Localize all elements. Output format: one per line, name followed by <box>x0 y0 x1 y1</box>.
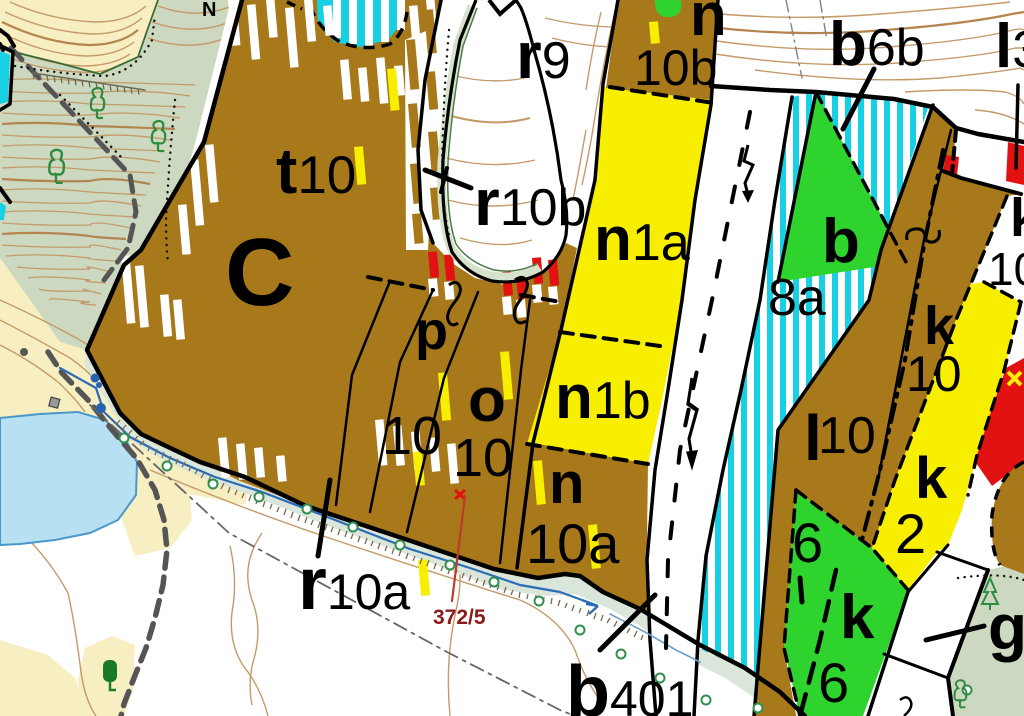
svg-text:b: b <box>822 207 860 276</box>
svg-text:g: g <box>988 591 1024 663</box>
svg-text:t10: t10 <box>276 135 356 207</box>
svg-text:10a: 10a <box>526 512 620 575</box>
svg-text:k: k <box>840 583 875 652</box>
svg-text:b6b: b6b <box>829 10 925 79</box>
svg-text:n1a: n1a <box>594 205 690 274</box>
svg-text:8a: 8a <box>768 269 826 327</box>
svg-text:n1b: n1b <box>555 363 651 432</box>
svg-text:10: 10 <box>988 243 1024 295</box>
svg-text:10: 10 <box>906 346 962 402</box>
svg-text:10b: 10b <box>634 40 717 96</box>
svg-text:k: k <box>1010 188 1024 248</box>
svg-text:2: 2 <box>895 502 926 565</box>
svg-text:6: 6 <box>818 651 849 714</box>
svg-text:10: 10 <box>382 406 442 466</box>
svg-text:l3: l3 <box>995 12 1024 81</box>
svg-text:10: 10 <box>453 428 513 488</box>
svg-text:372/5: 372/5 <box>433 606 486 629</box>
svg-text:p: p <box>415 301 448 361</box>
svg-text:C: C <box>225 219 294 326</box>
svg-text:10: 10 <box>818 407 876 465</box>
svg-text:n: n <box>549 451 584 516</box>
svg-text:6: 6 <box>792 511 823 574</box>
svg-text:o: o <box>468 366 506 435</box>
svg-text:N: N <box>202 0 216 21</box>
